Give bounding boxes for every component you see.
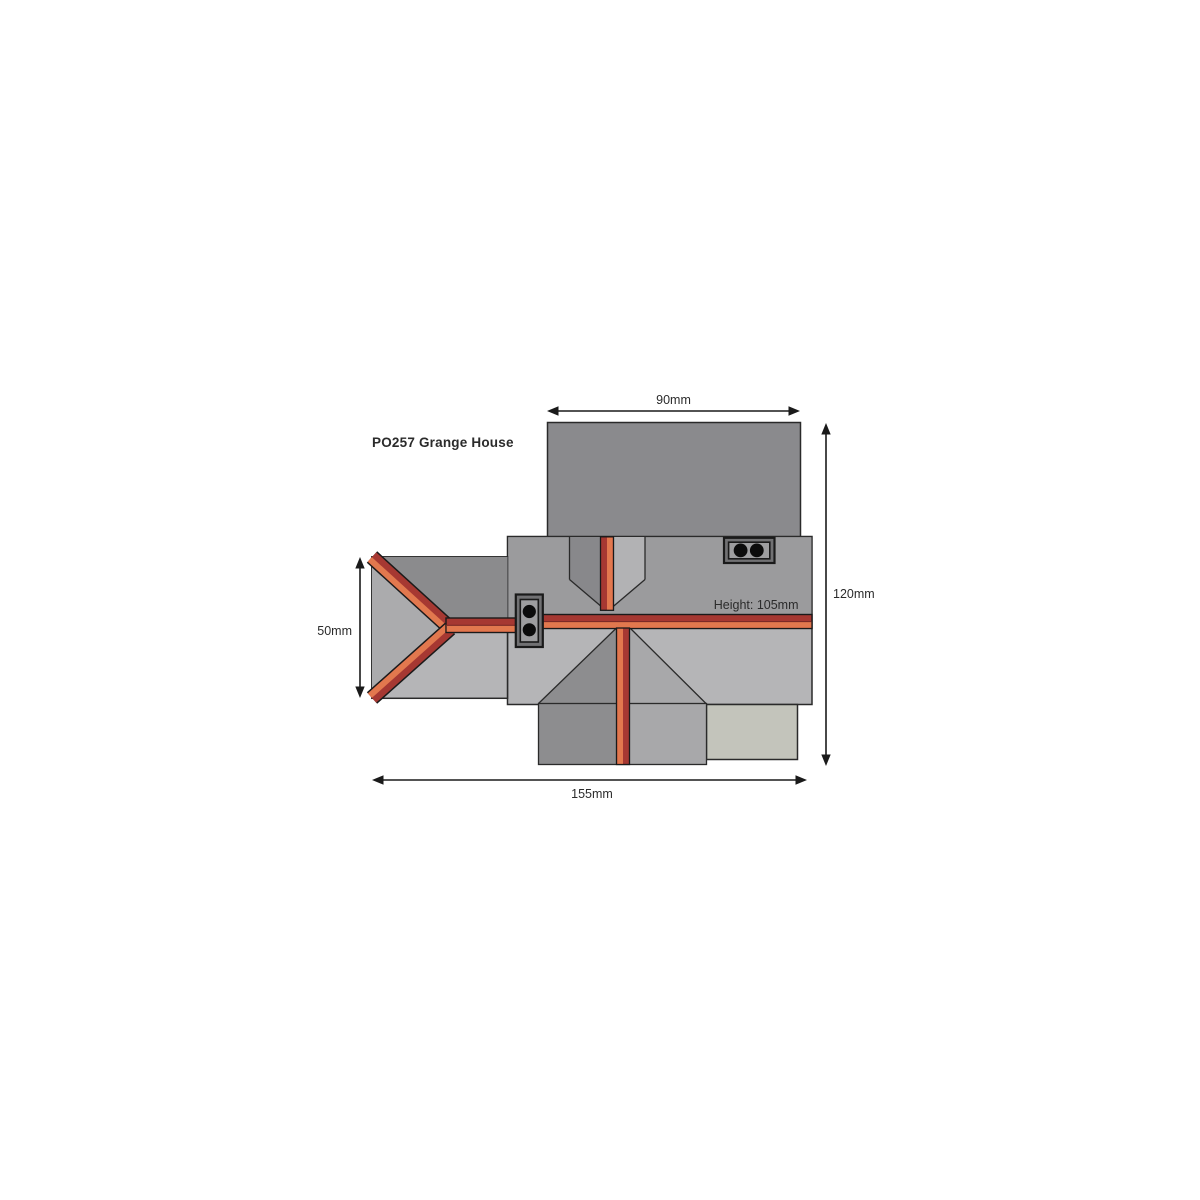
arrowhead-up-icon: [821, 423, 830, 435]
dimension-label-left: 50mm: [317, 624, 352, 638]
chimney-pot-icon: [523, 623, 536, 636]
arrowhead-left-icon: [372, 775, 384, 784]
chimney-pot-icon: [523, 605, 536, 618]
dimension-left-wing-depth: 50mm: [317, 557, 364, 698]
dimension-label-right: 120mm: [833, 587, 875, 601]
valley-ridge-band: [601, 537, 614, 611]
arrowhead-up-icon: [355, 557, 364, 569]
dimension-label-top: 90mm: [656, 393, 691, 407]
dimension-bottom-width: 155mm: [372, 775, 807, 801]
dimension-top-width: 90mm: [547, 393, 800, 416]
arrowhead-left-icon: [547, 406, 559, 415]
arrowhead-right-icon: [796, 775, 808, 784]
chimney-pot-icon: [734, 544, 748, 558]
main-ridge-band: [528, 615, 812, 629]
left-wing-roof: [370, 557, 532, 699]
left-chimney: [516, 595, 543, 648]
kit-title: PO257 Grange House: [372, 435, 514, 450]
roof-plan-diagram: PO257 Grange House: [0, 0, 1200, 1200]
arrowhead-down-icon: [821, 755, 830, 767]
top-right-chimney: [724, 538, 775, 563]
dimension-right-height: 120mm: [821, 423, 874, 766]
dimension-label-bottom: 155mm: [571, 787, 613, 801]
chimney-pot-icon: [750, 544, 764, 558]
height-note-label: Height: 105mm: [714, 598, 799, 612]
arrowhead-down-icon: [355, 687, 364, 699]
side-annex-roof: [707, 705, 798, 760]
diagram-page: PO257 Grange House: [0, 0, 1200, 1200]
arrowhead-right-icon: [789, 406, 801, 415]
bottom-wing-ridge-band: [617, 628, 630, 765]
rear-roof-slope: [548, 423, 801, 538]
